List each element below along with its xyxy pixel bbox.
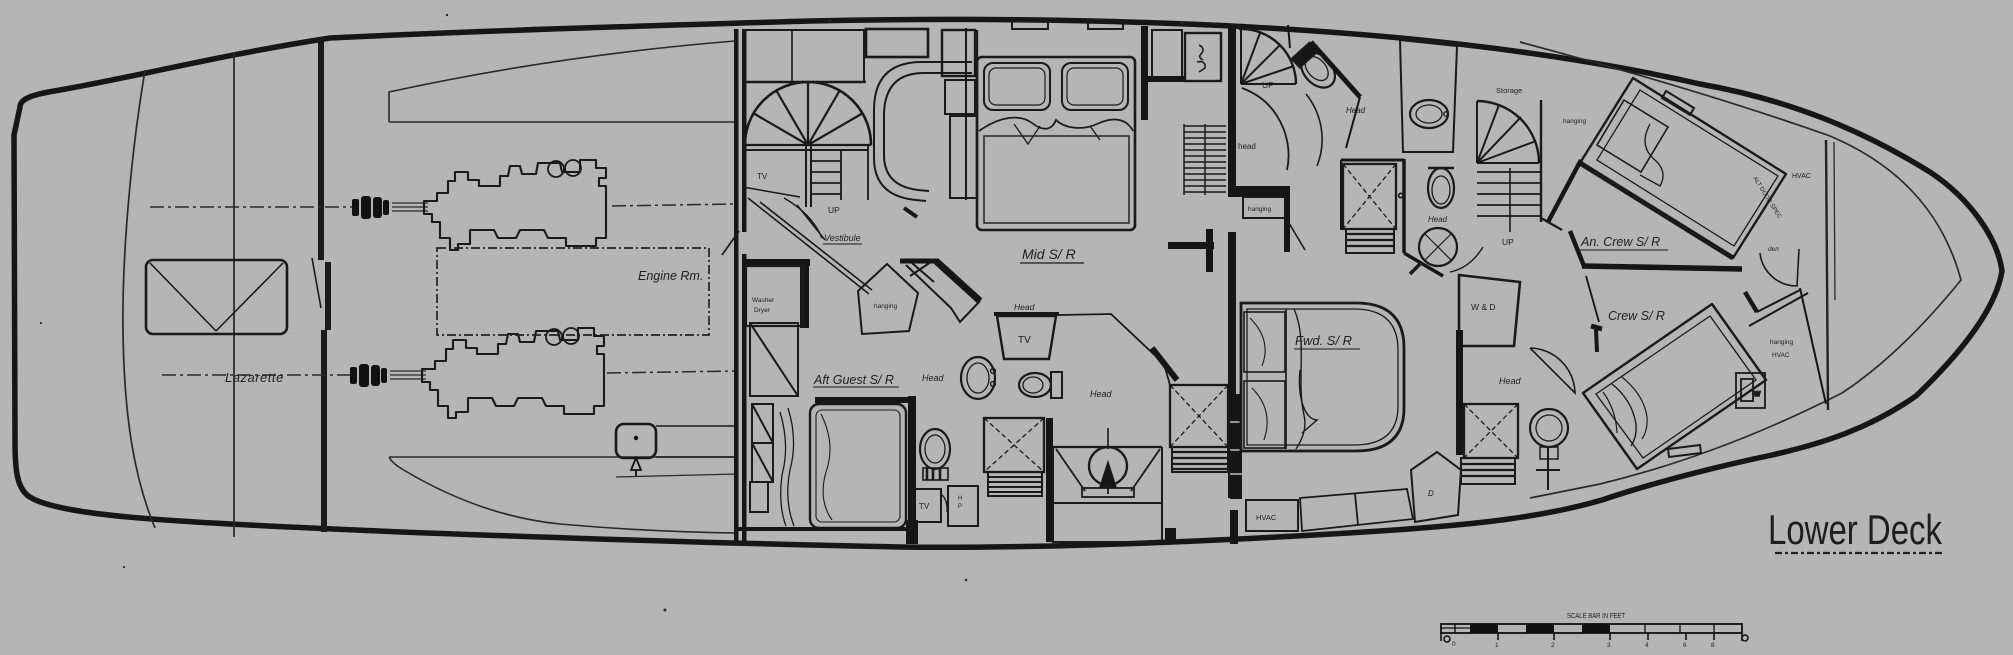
svg-text:2: 2 [1551,642,1555,649]
svg-text:Aft Guest S/ R: Aft Guest S/ R [813,373,894,387]
svg-text:Lazarette: Lazarette [225,370,284,385]
svg-text:6: 6 [1683,642,1687,649]
svg-text:Head: Head [1499,376,1522,386]
svg-text:Crew S/ R: Crew S/ R [1608,309,1665,323]
svg-text:Head: Head [1428,215,1448,224]
svg-text:Lower Deck: Lower Deck [1768,506,1943,553]
svg-text:Head: Head [1014,302,1035,312]
svg-text:Head: Head [922,373,945,383]
svg-text:D: D [1428,489,1434,498]
svg-text:HVAC: HVAC [1256,513,1277,522]
svg-text:hanging: hanging [874,303,898,310]
svg-text:Storage: Storage [1496,86,1522,95]
svg-text:HVAC: HVAC [1772,352,1790,359]
svg-text:4: 4 [1645,642,1649,649]
svg-text:Vestibule: Vestibule [824,233,861,243]
svg-text:Mid S/ R: Mid S/ R [1022,246,1076,262]
svg-text:TV: TV [1018,335,1031,346]
svg-text:H: H [958,496,962,502]
svg-text:0: 0 [1452,641,1456,648]
svg-text:hanging: hanging [1248,206,1272,213]
svg-text:hanging: hanging [1770,339,1794,346]
svg-text:hanging: hanging [1563,118,1587,125]
svg-text:UP: UP [828,205,840,215]
svg-text:3: 3 [1607,642,1611,649]
svg-text:HVAC: HVAC [1792,173,1811,180]
svg-text:W: W [1754,391,1761,398]
svg-text:Washer: Washer [752,297,775,304]
svg-text:TV: TV [919,502,930,511]
svg-text:head: head [1238,142,1256,151]
svg-text:8: 8 [1711,642,1715,649]
svg-text:An. Crew S/ R: An. Crew S/ R [1580,235,1660,249]
svg-text:TV: TV [757,172,768,181]
svg-text:P: P [958,504,962,510]
svg-text:W & D: W & D [1471,302,1496,312]
svg-text:UP: UP [1262,80,1274,90]
svg-text:UP: UP [1502,237,1514,247]
svg-text:Head: Head [1090,389,1113,399]
svg-text:SCALE BAR IN FEET: SCALE BAR IN FEET [1567,613,1626,620]
svg-text:Fwd. S/ R: Fwd. S/ R [1295,333,1352,348]
svg-text:1: 1 [1495,642,1499,649]
svg-text:Dryer: Dryer [754,307,771,314]
svg-text:Engine Rm.: Engine Rm. [638,269,703,283]
svg-text:den: den [1768,246,1779,253]
